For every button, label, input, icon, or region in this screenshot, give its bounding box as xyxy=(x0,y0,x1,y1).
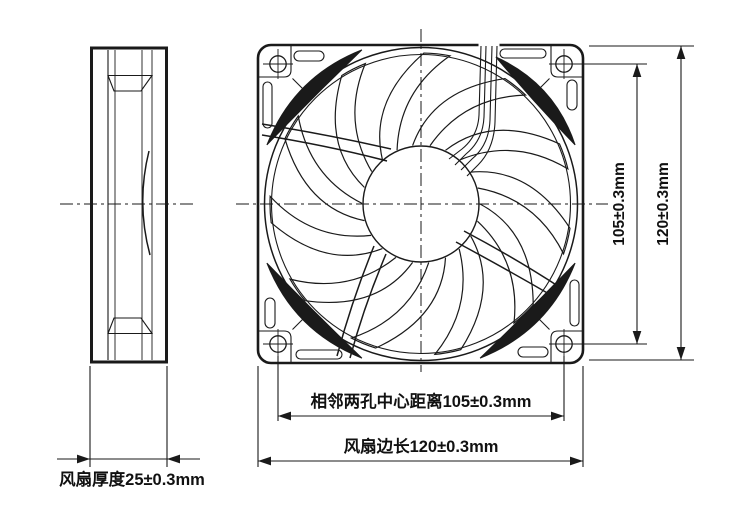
wire-channel xyxy=(449,46,497,176)
fan-side-view xyxy=(92,48,167,362)
dim-hole-pitch-vertical: 105±0.3mm xyxy=(578,64,647,344)
corner-rib-top-right xyxy=(496,57,575,145)
strut-bottom-right xyxy=(456,242,556,298)
dim-thickness: 风扇厚度25±0.3mm xyxy=(57,366,205,489)
frame-gap xyxy=(479,40,500,50)
side-view-blade-arc xyxy=(143,151,150,255)
dim-label-hole-pitch-vertical: 105±0.3mm xyxy=(611,162,628,245)
dim-label-side-length-vertical: 120±0.3mm xyxy=(655,162,672,245)
fan-blade xyxy=(336,255,467,355)
drawing-svg: 105±0.3mm 120±0.3mm 相邻两孔中心距离105±0.3mm 风扇… xyxy=(0,0,750,527)
dim-label-thickness: 风扇厚度25±0.3mm xyxy=(59,469,205,489)
strut-left xyxy=(262,124,391,149)
fan-technical-drawing: 105±0.3mm 120±0.3mm 相邻两孔中心距离105±0.3mm 风扇… xyxy=(0,0,750,527)
dim-label-side-length-horizontal: 风扇边长120±0.3mm xyxy=(344,436,499,456)
strut-bottom-right xyxy=(464,231,561,288)
side-view-outline xyxy=(92,48,167,362)
dim-label-hole-pitch-horizontal: 相邻两孔中心距离105±0.3mm xyxy=(311,391,532,411)
strut-left xyxy=(262,135,387,161)
wire-channel-line xyxy=(455,46,486,165)
dim-side-length-vertical: 120±0.3mm xyxy=(589,46,694,360)
fan-blade xyxy=(477,204,533,323)
strut-bottom-left xyxy=(350,254,386,358)
